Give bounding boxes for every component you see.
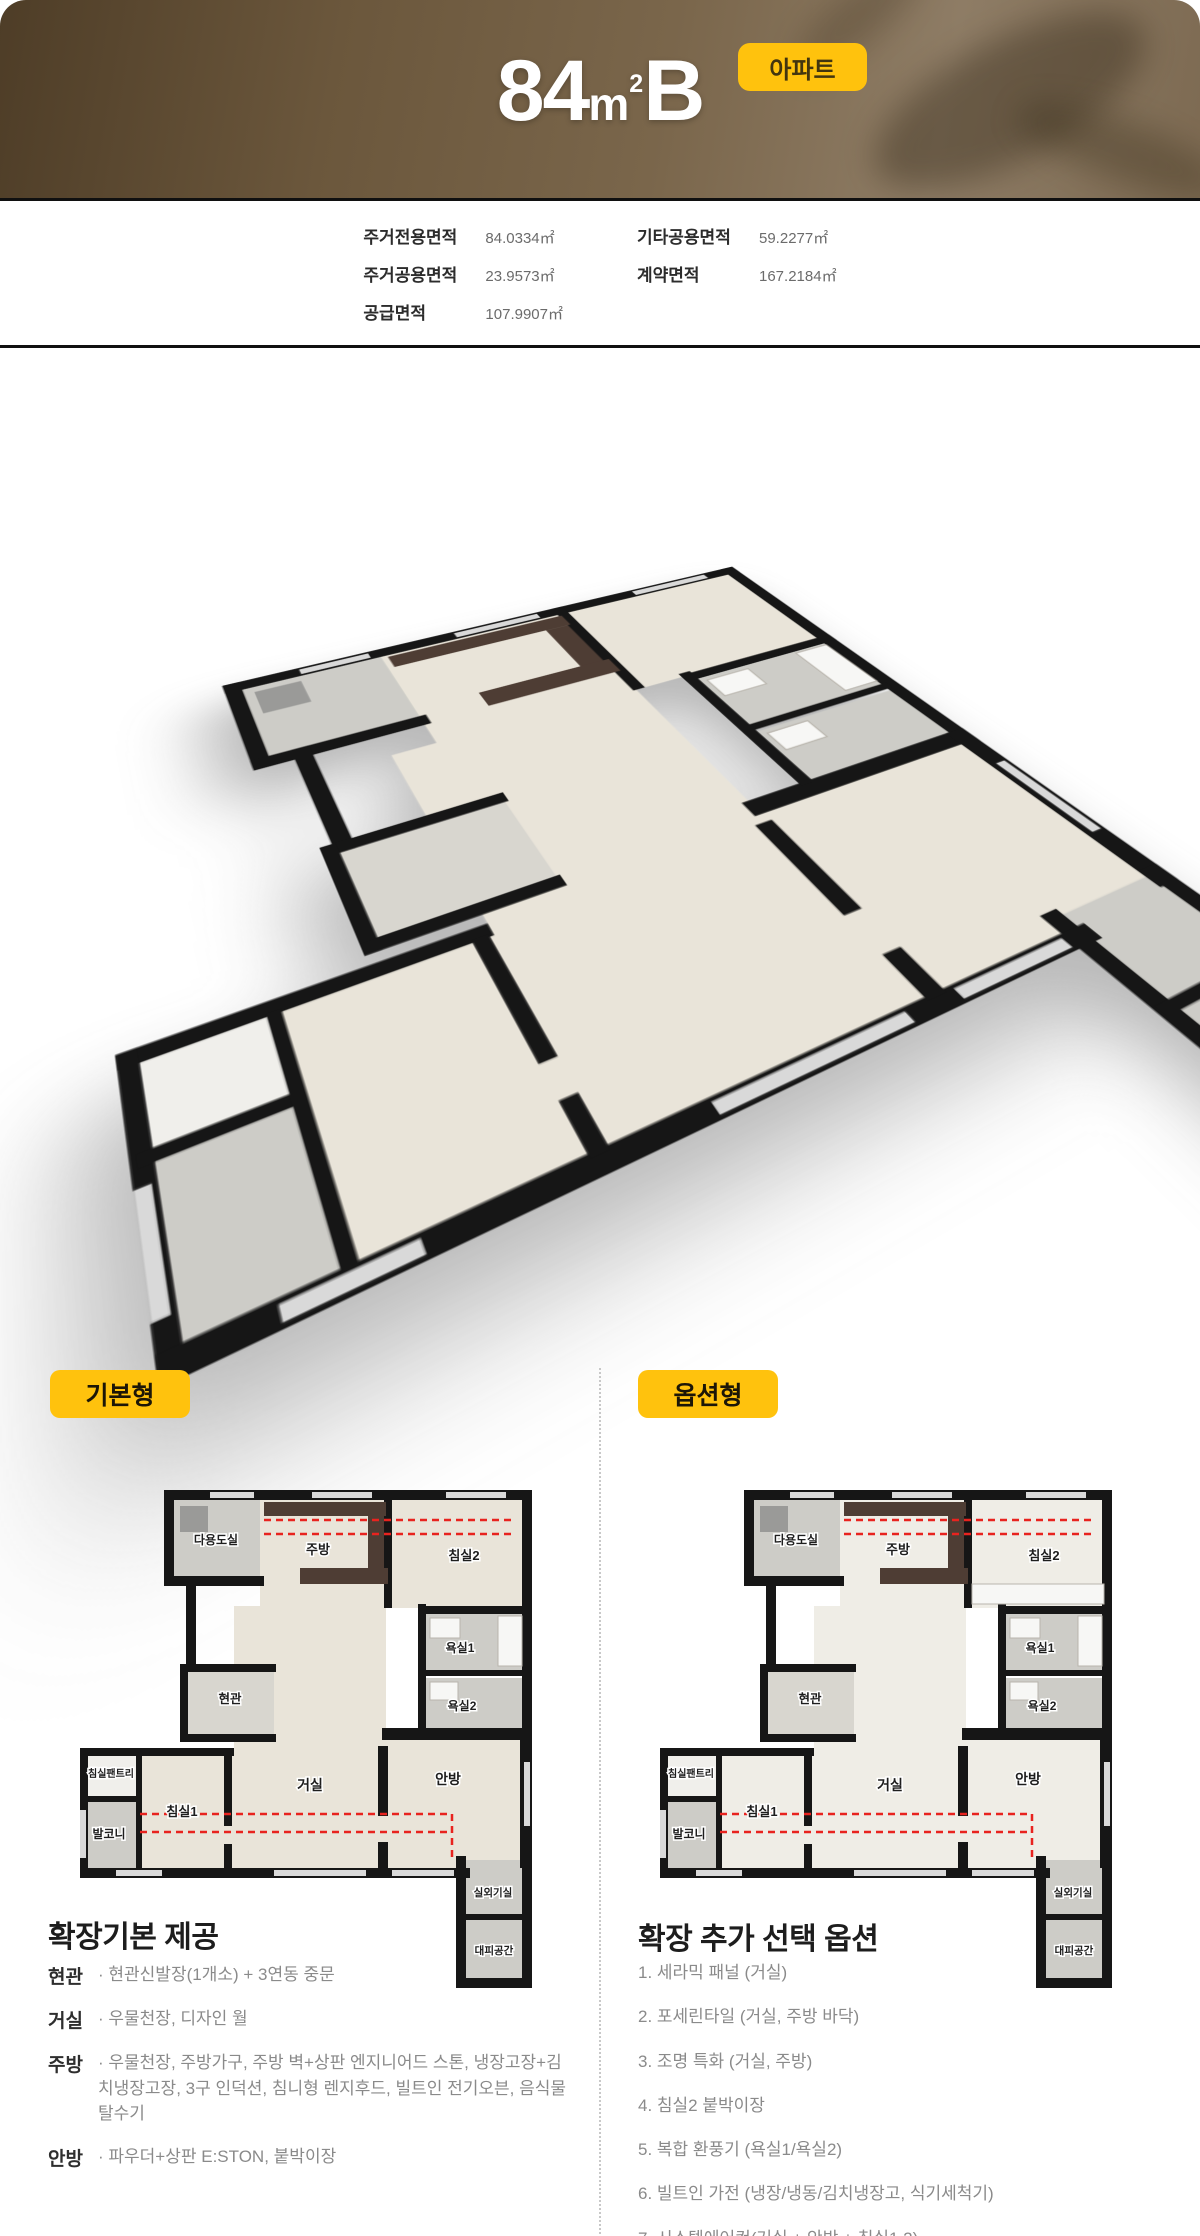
area-info-row: 기타공용면적59.2277㎡	[637, 223, 837, 248]
room-label-pantry: 침실팬트리	[88, 1767, 134, 1780]
room-label-bath1: 욕실1	[446, 1640, 475, 1655]
option-item: 5. 복합 환풍기 (욕실1/욕실2)	[638, 2139, 1158, 2160]
room-label-balcony: 발코니	[672, 1826, 705, 1841]
area-value: 84.0334㎡	[485, 227, 554, 248]
unit-84b-page: 84m2B 아파트 주거전용면적84.0334㎡주거공용면적23.9573㎡공급…	[0, 0, 1200, 2236]
area-info-row: 계약면적167.2184㎡	[637, 261, 837, 286]
area-label: 주거전용면적	[363, 223, 469, 248]
area-label: 주거공용면적	[363, 261, 469, 286]
provided-item-label: 거실	[48, 2006, 98, 2033]
room-label-shelter: 대피공간	[1055, 1944, 1094, 1957]
room-label-utility: 다용도실	[774, 1532, 818, 1547]
area-info-table: 주거전용면적84.0334㎡주거공용면적23.9573㎡공급면적107.9907…	[0, 198, 1200, 348]
room-label-outdoor: 실외기실	[474, 1886, 513, 1899]
provided-heading: 확장기본 제공	[48, 1912, 218, 1956]
area-info-row: 공급면적107.9907㎡	[363, 299, 563, 324]
provided-item: 주방· 우물천장, 주방가구, 주방 벽+상판 엔지니어드 스톤, 냉장고장+김…	[48, 2050, 568, 2127]
provided-item-text: · 우물천장, 디자인 월	[98, 2006, 568, 2033]
options-heading: 확장 추가 선택 옵션	[638, 1914, 878, 1958]
provided-item: 거실· 우물천장, 디자인 월	[48, 2006, 568, 2033]
floor-plan-svg-option: 다용도실주방침실2욕실1욕실2현관침실팬트리발코니침실1거실안방실외기실대피공간	[640, 1466, 1120, 1991]
room-label-bath2: 욕실2	[448, 1698, 477, 1713]
options-list: 1. 세라믹 패널 (거실)2. 포세린타일 (거실, 주방 바닥)3. 조명 …	[638, 1962, 1158, 2236]
room-label-bed2: 침실2	[1028, 1548, 1059, 1563]
area-info-column-1: 주거전용면적84.0334㎡주거공용면적23.9573㎡공급면적107.9907…	[363, 223, 563, 345]
option-item: 7. 시스템에어컨(거실 + 안방 + 침실1,2)	[638, 2228, 1158, 2236]
room-label-master: 안방	[435, 1771, 461, 1787]
area-label: 공급면적	[363, 299, 469, 324]
area-label: 계약면적	[637, 261, 743, 286]
room-label-shelter: 대피공간	[475, 1944, 514, 1957]
option-item: 2. 포세린타일 (거실, 주방 바닥)	[638, 2006, 1158, 2027]
option-item: 4. 침실2 붙박이장	[638, 2095, 1158, 2116]
basic-type-badge: 기본형	[50, 1370, 190, 1418]
option-item: 6. 빌트인 가전 (냉장/냉동/김치냉장고, 식기세척기)	[638, 2183, 1158, 2204]
provided-list: 현관· 현관신발장(1개소) + 3연동 중문거실· 우물천장, 디자인 월주방…	[48, 1962, 568, 2188]
unit-type-letter: B	[643, 43, 703, 139]
unit-size-unit: m2	[588, 78, 643, 130]
area-info-row: 주거공용면적23.9573㎡	[363, 261, 563, 286]
area-info-row: 주거전용면적84.0334㎡	[363, 223, 563, 248]
option-item: 1. 세라믹 패널 (거실)	[638, 1962, 1158, 1983]
room-label-balcony: 발코니	[92, 1826, 125, 1841]
provided-item: 안방· 파우더+상판 E:STON, 붙박이장	[48, 2144, 568, 2171]
provided-item-text: · 우물천장, 주방가구, 주방 벽+상판 엔지니어드 스톤, 냉장고장+김치냉…	[98, 2050, 568, 2127]
header-banner: 84m2B 아파트	[0, 0, 1200, 198]
room-label-entry: 현관	[798, 1691, 822, 1706]
floor-plan-3d-view	[90, 372, 1110, 1332]
area-value: 167.2184㎡	[759, 265, 837, 286]
provided-item-label: 안방	[48, 2144, 98, 2171]
room-label-kitchen: 주방	[306, 1542, 330, 1557]
area-label: 기타공용면적	[637, 223, 743, 248]
floor-plan-option: 다용도실주방침실2욕실1욕실2현관침실팬트리발코니침실1거실안방실외기실대피공간	[640, 1466, 1120, 1991]
room-label-entry: 현관	[218, 1691, 242, 1706]
room-label-kitchen: 주방	[886, 1542, 910, 1557]
provided-item-label: 주방	[48, 2050, 98, 2127]
area-value: 59.2277㎡	[759, 227, 828, 248]
apartment-badge: 아파트	[738, 43, 867, 91]
room-label-living: 거실	[297, 1777, 323, 1793]
option-item: 3. 조명 특화 (거실, 주방)	[638, 2051, 1158, 2072]
room-label-utility: 다용도실	[194, 1532, 238, 1547]
area-info-column-2: 기타공용면적59.2277㎡계약면적167.2184㎡	[637, 223, 837, 345]
provided-item: 현관· 현관신발장(1개소) + 3연동 중문	[48, 1962, 568, 1989]
provided-item-text: · 파우더+상판 E:STON, 붙박이장	[98, 2144, 568, 2171]
room-label-outdoor: 실외기실	[1054, 1886, 1093, 1899]
room-label-bath1: 욕실1	[1026, 1640, 1055, 1655]
room-label-bath2: 욕실2	[1028, 1698, 1057, 1713]
area-value: 23.9573㎡	[485, 265, 554, 286]
room-label-bed2: 침실2	[448, 1548, 479, 1563]
room-label-bed1: 침실1	[166, 1804, 197, 1819]
provided-item-text: · 현관신발장(1개소) + 3연동 중문	[98, 1962, 568, 1989]
column-divider	[599, 1368, 601, 2234]
provided-item-label: 현관	[48, 1962, 98, 1989]
area-value: 107.9907㎡	[485, 303, 563, 324]
room-label-pantry: 침실팬트리	[668, 1767, 714, 1780]
option-type-badge: 옵션형	[638, 1370, 778, 1418]
unit-size-number: 84	[497, 43, 589, 139]
room-label-living: 거실	[877, 1777, 903, 1793]
room-label-master: 안방	[1015, 1771, 1041, 1787]
unit-title: 84m2B	[0, 48, 1200, 134]
room-label-bed1: 침실1	[746, 1804, 777, 1819]
